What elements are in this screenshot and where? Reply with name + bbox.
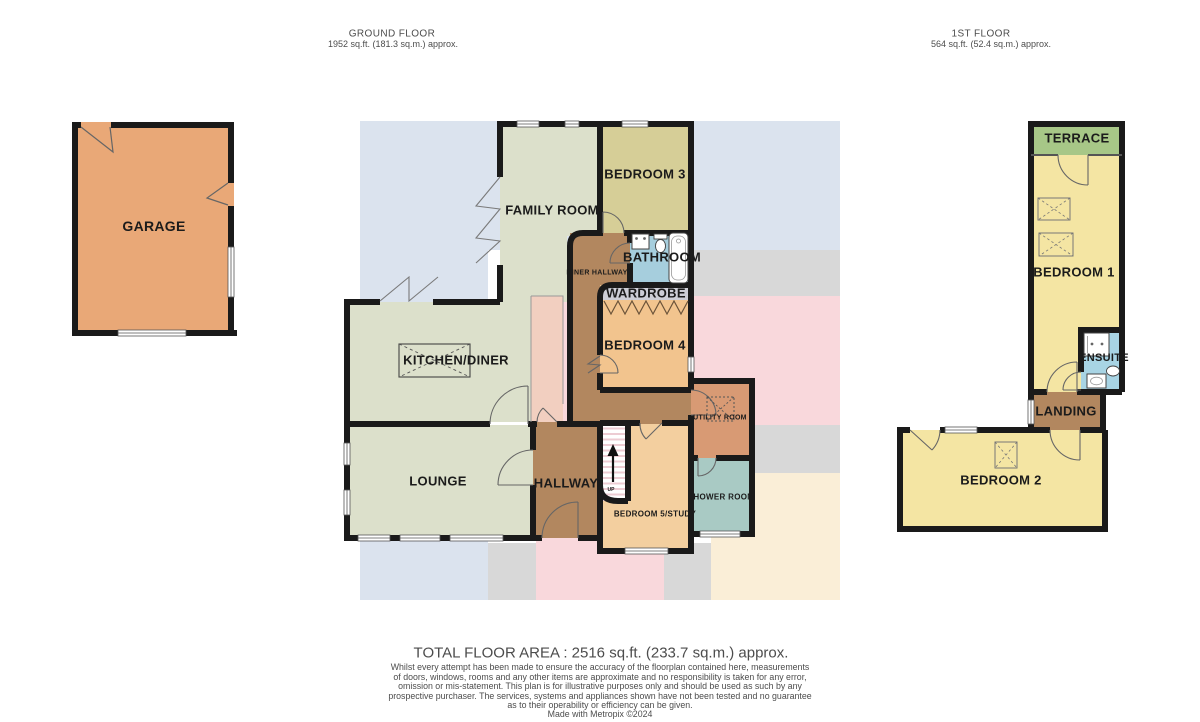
floorplan-page: GROUND FLOOR 1952 sq.ft. (181.3 sq.m.) a… <box>0 0 1200 722</box>
room-cupboard <box>531 296 563 422</box>
label-bedroom-4: BEDROOM 4 <box>604 338 685 353</box>
label-garage: GARAGE <box>122 218 185 234</box>
room-corridor <box>570 285 600 422</box>
total-floor-area: TOTAL FLOOR AREA : 2516 sq.ft. (233.7 sq… <box>414 645 789 662</box>
zone-grey-bottom-2 <box>664 543 711 600</box>
first-floor-area: 564 sq.ft. (52.4 sq.m.) approx. <box>931 39 1051 49</box>
room-bedroom-5-ext <box>600 501 628 551</box>
room-inner-hallway <box>570 233 630 285</box>
label-bedroom-3: BEDROOM 3 <box>604 167 685 182</box>
label-shower-room: SHOWER ROOM <box>688 493 754 502</box>
label-bedroom-5: BEDROOM 5/STUDY <box>614 510 696 519</box>
first-floor-windows <box>945 400 1034 433</box>
label-bedroom-2: BEDROOM 2 <box>960 473 1041 488</box>
label-utility-room: UTILITY ROOM <box>693 415 747 422</box>
label-landing: LANDING <box>1035 404 1096 419</box>
label-bathroom: BATHROOM <box>623 250 701 265</box>
metropix-credit: Made with Metropix ©2024 <box>548 709 653 719</box>
label-ensuite: ENSUITE <box>1079 352 1129 364</box>
label-bedroom-1: BEDROOM 1 <box>1033 265 1114 280</box>
label-stairs-up: UP <box>608 487 615 493</box>
label-family-room: FAMILY ROOM <box>505 203 599 218</box>
disclaimer-line: Whilst every attempt has been made to en… <box>391 662 810 672</box>
room-bedroom-5 <box>628 424 691 551</box>
disclaimer-line: omission or mis-statement. This plan is … <box>398 681 802 691</box>
room-corridor-east <box>600 390 691 424</box>
ground-floor-area: 1952 sq.ft. (181.3 sq.m.) approx. <box>328 39 458 49</box>
label-inner-hallway: INNER HALLWAY <box>566 270 627 277</box>
room-family-room-lower <box>500 236 567 302</box>
label-kitchen-diner: KITCHEN/DINER <box>403 353 509 368</box>
label-wardrobe: WARDROBE <box>606 286 686 301</box>
first-floor-title: 1ST FLOOR <box>952 29 1011 40</box>
label-hallway: HALLWAY <box>534 476 598 491</box>
zone-grey-right-1 <box>694 250 840 296</box>
label-terrace: TERRACE <box>1045 131 1110 146</box>
disclaimer-line: prospective purchaser. The services, sys… <box>388 691 811 701</box>
room-family-room <box>500 124 600 236</box>
label-lounge: LOUNGE <box>409 474 466 489</box>
zone-grey-bottom-1 <box>488 543 536 600</box>
ground-floor-title: GROUND FLOOR <box>349 29 435 40</box>
disclaimer-line: of doors, windows, rooms and any other i… <box>393 672 806 682</box>
